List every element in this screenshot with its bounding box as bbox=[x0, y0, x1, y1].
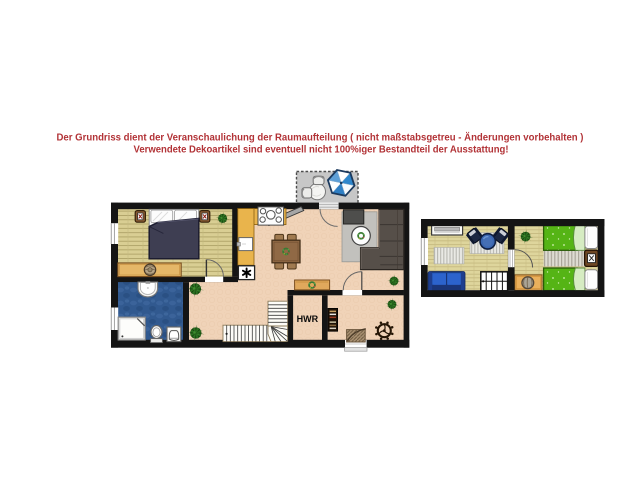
svg-text:HWR: HWR bbox=[297, 314, 319, 324]
svg-text:Verwendete Dekoartikel sind ev: Verwendete Dekoartikel sind eventuell ni… bbox=[134, 145, 509, 156]
svg-text:Der Grundriss dient der Verans: Der Grundriss dient der Veranschaulichun… bbox=[57, 131, 584, 144]
